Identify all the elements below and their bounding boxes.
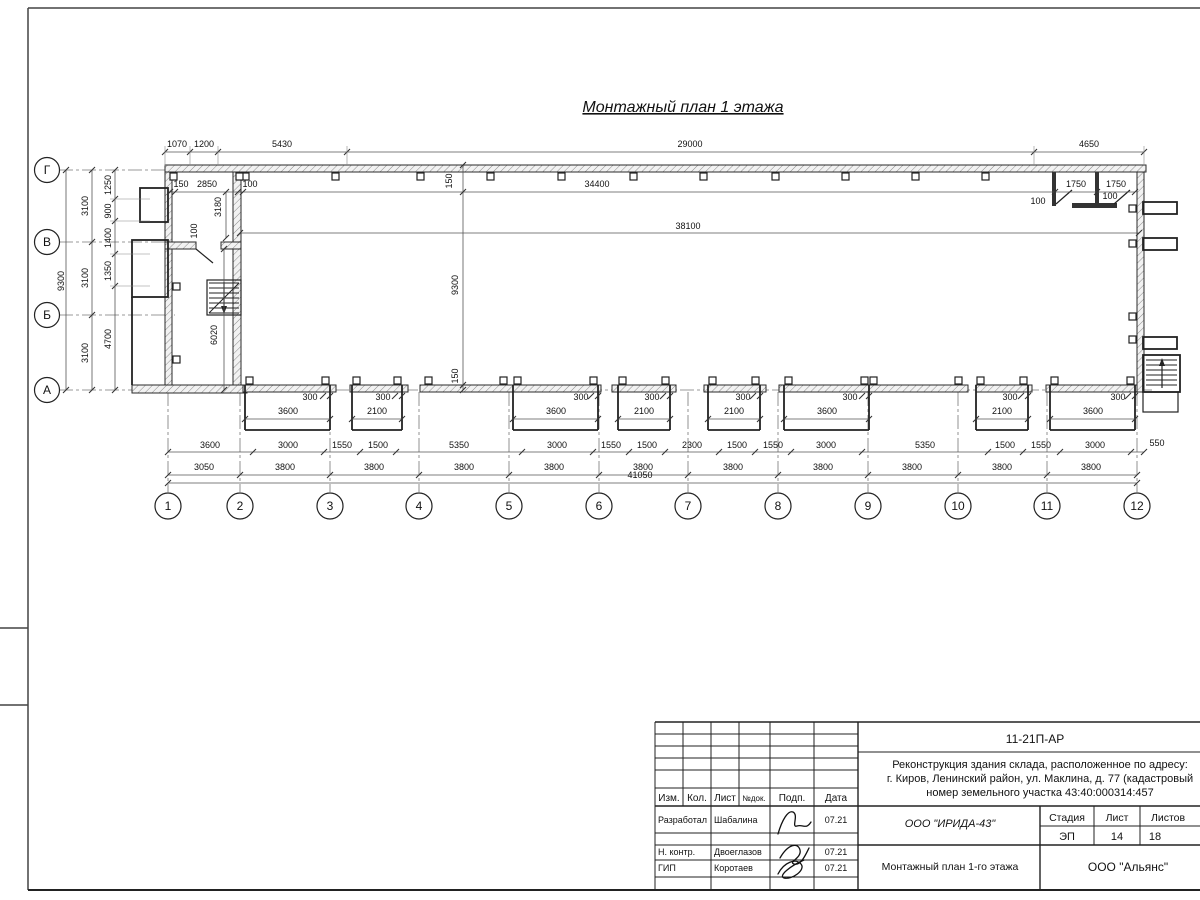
dim-label: 9300	[56, 271, 66, 291]
outline	[140, 188, 168, 222]
dim-label: 3600	[546, 406, 566, 416]
dim-label: 3800	[1081, 462, 1101, 472]
wall	[350, 385, 408, 392]
column-mark	[1129, 313, 1136, 320]
wall	[779, 385, 968, 392]
dim-label: 3800	[364, 462, 384, 472]
column-mark	[1127, 377, 1134, 384]
dim-label: 1750	[1066, 179, 1086, 189]
table-header: Подп.	[779, 793, 806, 804]
dim-label: 9300	[450, 275, 460, 295]
staff-date: 07.21	[825, 847, 848, 857]
dim-label: 3100	[80, 268, 90, 288]
dim-label: 3800	[275, 462, 295, 472]
axis-label: 12	[1130, 499, 1144, 513]
dim-label: 5350	[449, 440, 469, 450]
dim-label: 3100	[80, 343, 90, 363]
dim-label: 5350	[915, 440, 935, 450]
wall	[233, 172, 241, 242]
column-mark	[500, 377, 507, 384]
project-desc-line3: номер земельного участка 43:40:000314:45…	[926, 787, 1154, 799]
wall	[221, 242, 241, 249]
column-mark	[590, 377, 597, 384]
column-mark	[322, 377, 329, 384]
dim-label: 34400	[584, 179, 609, 189]
wall	[243, 385, 336, 392]
dim-label: 1550	[1031, 440, 1051, 450]
dim-label: 3800	[723, 462, 743, 472]
column-mark	[1129, 205, 1136, 212]
dim-label: 2100	[992, 406, 1012, 416]
column-mark	[842, 173, 849, 180]
dim-label: 2100	[724, 406, 744, 416]
dim-label: 1200	[194, 139, 214, 149]
axis-label: Б	[43, 308, 51, 322]
column-mark	[709, 377, 716, 384]
dim-label: 1070	[167, 139, 187, 149]
column-mark	[1020, 377, 1027, 384]
axis-label: 7	[685, 499, 692, 513]
staff-date: 07.21	[825, 815, 848, 825]
column-mark	[700, 173, 707, 180]
dim-label: 3000	[816, 440, 836, 450]
column-mark	[662, 377, 669, 384]
dim-label: 3600	[817, 406, 837, 416]
dim-label: 3800	[902, 462, 922, 472]
dim-label: 100	[1102, 191, 1117, 201]
outline	[1143, 337, 1177, 349]
dim-label: 150	[444, 173, 454, 188]
axis-label: Г	[44, 163, 51, 177]
axis-label: 10	[951, 499, 965, 513]
column-mark	[955, 377, 962, 384]
wall	[1046, 385, 1137, 392]
drawing-title: Монтажный план 1-го этажа	[882, 861, 1019, 873]
dim-label: 38100	[675, 221, 700, 231]
column-mark	[912, 173, 919, 180]
sheets-value: 18	[1149, 831, 1161, 843]
table-header: Лист	[714, 793, 736, 804]
dim-tick	[750, 393, 756, 399]
dim-label: 1550	[332, 440, 352, 450]
column-mark	[514, 377, 521, 384]
dim-label: 3000	[1085, 440, 1105, 450]
dim-label: 3800	[992, 462, 1012, 472]
sheets-label: Листов	[1151, 812, 1186, 824]
column-mark	[619, 377, 626, 384]
sheet-label: Лист	[1106, 812, 1129, 824]
dim-label: 100	[1030, 196, 1045, 206]
dim-tick	[660, 393, 666, 399]
dim-label: 4700	[103, 329, 113, 349]
project-desc-line2: г. Киров, Ленинский район, ул. Маклина, …	[887, 773, 1193, 785]
column-mark	[394, 377, 401, 384]
dim-label: 41050	[627, 470, 652, 480]
stair-arrowhead	[1159, 358, 1165, 366]
dim-label: 150	[173, 179, 188, 189]
column-mark	[173, 356, 180, 363]
wall	[132, 385, 247, 393]
dim-label: 300	[375, 392, 390, 402]
column-mark	[332, 173, 339, 180]
doc-code: 11-21П-АР	[1006, 732, 1064, 746]
outline	[1143, 238, 1177, 250]
door-leaf	[196, 249, 213, 263]
dim-label: 3180	[213, 197, 223, 217]
column-mark	[353, 377, 360, 384]
wall	[612, 385, 676, 392]
dim-label: 6020	[209, 325, 219, 345]
dim-label: 300	[573, 392, 588, 402]
dim-label: 3800	[454, 462, 474, 472]
axis-label: 6	[596, 499, 603, 513]
column-mark	[982, 173, 989, 180]
dim-tick	[1125, 393, 1131, 399]
drawing-sheet: { "title": "Монтажный план 1 этажа", "pl…	[0, 0, 1200, 900]
table-header: №док.	[742, 794, 765, 803]
wall	[165, 242, 196, 249]
dim-label: 2100	[634, 406, 654, 416]
dim-label: 300	[842, 392, 857, 402]
column-mark	[173, 283, 180, 290]
dim-label: 1550	[763, 440, 783, 450]
dim-label: 5430	[272, 139, 292, 149]
table-header: Изм.	[658, 793, 679, 804]
staff-role: Н. контр.	[658, 847, 695, 857]
dim-label: 4650	[1079, 139, 1099, 149]
dim-label: 3100	[80, 196, 90, 216]
column-mark	[558, 173, 565, 180]
stage-value: ЭП	[1059, 831, 1075, 843]
table-header: Дата	[825, 793, 848, 804]
staff-role: Разработал	[658, 815, 707, 825]
dim-label: 1750	[1106, 179, 1126, 189]
table-header: Кол.	[687, 793, 707, 804]
column-mark	[630, 173, 637, 180]
partition	[1052, 172, 1056, 206]
wall	[704, 385, 766, 392]
axis-label: 8	[775, 499, 782, 513]
floor-plan-drawing: Монтажный план 1 этажа 10701200543029000…	[0, 0, 1200, 900]
outline	[1143, 392, 1178, 412]
column-mark	[425, 377, 432, 384]
dim-label: 300	[302, 392, 317, 402]
dim-label: 300	[644, 392, 659, 402]
axis-label: 3	[327, 499, 334, 513]
dim-label: 900	[103, 203, 113, 218]
axis-label: 11	[1041, 499, 1054, 513]
column-mark	[1129, 336, 1136, 343]
dim-label: 1350	[103, 261, 113, 281]
dim-label: 2850	[197, 179, 217, 189]
staff-name: Двоеглазов	[714, 847, 762, 857]
dim-label: 3800	[544, 462, 564, 472]
wall	[165, 165, 1146, 172]
dim-tick	[588, 393, 594, 399]
wall	[420, 385, 601, 392]
dim-label: 3800	[813, 462, 833, 472]
dim-label: 3050	[194, 462, 214, 472]
signature-gip	[778, 860, 804, 878]
dim-label: 1400	[103, 228, 113, 248]
dim-label: 300	[1110, 392, 1125, 402]
project-desc-line1: Реконструкция здания склада, расположенн…	[892, 759, 1188, 771]
dim-label: 1500	[995, 440, 1015, 450]
axis-label: 2	[237, 499, 244, 513]
dim-label: 3600	[278, 406, 298, 416]
dim-label: 1500	[637, 440, 657, 450]
staff-date: 07.21	[825, 863, 848, 873]
dim-label: 1250	[103, 175, 113, 195]
dim-label: 3600	[200, 440, 220, 450]
column-mark	[772, 173, 779, 180]
dim-tick	[392, 393, 398, 399]
wall	[233, 249, 241, 385]
dim-label: 2100	[367, 406, 387, 416]
partition	[1072, 203, 1117, 208]
axis-label: 9	[865, 499, 872, 513]
dim-label: 3000	[547, 440, 567, 450]
dim-label: 2300	[682, 440, 702, 450]
column-mark	[1051, 377, 1058, 384]
signature-developer	[778, 812, 811, 834]
column-mark	[752, 377, 759, 384]
dim-label: 3600	[1083, 406, 1103, 416]
axis-label: 4	[416, 499, 423, 513]
dim-label: 100	[242, 179, 257, 189]
axis-label: 5	[506, 499, 513, 513]
column-mark	[861, 377, 868, 384]
dim-label: 300	[735, 392, 750, 402]
staff-name: Коротаев	[714, 863, 753, 873]
dim-label: 100	[189, 223, 199, 238]
column-mark	[246, 377, 253, 384]
sheet-value: 14	[1111, 831, 1123, 843]
page-title: Монтажный план 1 этажа	[582, 99, 783, 116]
dim-tick	[859, 393, 865, 399]
column-mark	[977, 377, 984, 384]
staff-name: Шабалина	[714, 815, 757, 825]
dim-tick	[1018, 393, 1024, 399]
dim-label: 550	[1149, 438, 1164, 448]
axis-label: А	[43, 383, 51, 397]
stage-label: Стадия	[1049, 812, 1085, 824]
dim-label: 300	[1002, 392, 1017, 402]
column-mark	[1129, 240, 1136, 247]
column-mark	[870, 377, 877, 384]
company-name: ООО "Альянс"	[1088, 860, 1168, 874]
dim-label: 1550	[601, 440, 621, 450]
column-mark	[417, 173, 424, 180]
dim-label: 150	[450, 368, 460, 383]
column-mark	[785, 377, 792, 384]
staff-role: ГИП	[658, 863, 676, 873]
partition	[1095, 172, 1099, 206]
dim-label: 3000	[278, 440, 298, 450]
outline	[132, 240, 168, 297]
org-name: ООО "ИРИДА-43"	[905, 818, 997, 830]
wall	[976, 385, 1032, 392]
outline	[1143, 202, 1177, 214]
axis-label: 1	[165, 499, 172, 513]
dim-label: 29000	[677, 139, 702, 149]
column-mark	[487, 173, 494, 180]
dim-label: 1500	[727, 440, 747, 450]
dim-tick	[320, 393, 326, 399]
axis-label: В	[43, 235, 51, 249]
dim-label: 1500	[368, 440, 388, 450]
